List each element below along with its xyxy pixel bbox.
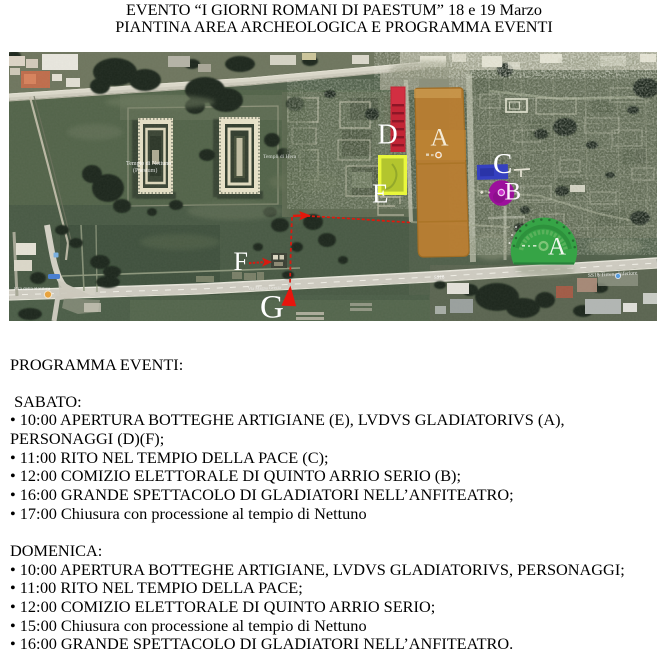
svg-text:Templi di Hera: Templi di Hera — [263, 154, 297, 160]
svg-text:E: E — [372, 179, 389, 209]
svg-text:SS18: SS18 — [434, 275, 445, 281]
svg-text:C: C — [493, 148, 512, 180]
svg-text:P.za della Basilica: P.za della Basilica — [14, 287, 51, 292]
svg-text:(Paestum): (Paestum) — [133, 167, 157, 174]
svg-text:B: B — [505, 179, 522, 206]
svg-text:G: G — [260, 290, 284, 322]
svg-text:A: A — [431, 125, 449, 152]
svg-text:A: A — [548, 234, 566, 261]
svg-text:F: F — [234, 247, 248, 276]
svg-text:Tempio di Nettuno: Tempio di Nettuno — [126, 161, 171, 167]
svg-text:D: D — [378, 120, 398, 151]
